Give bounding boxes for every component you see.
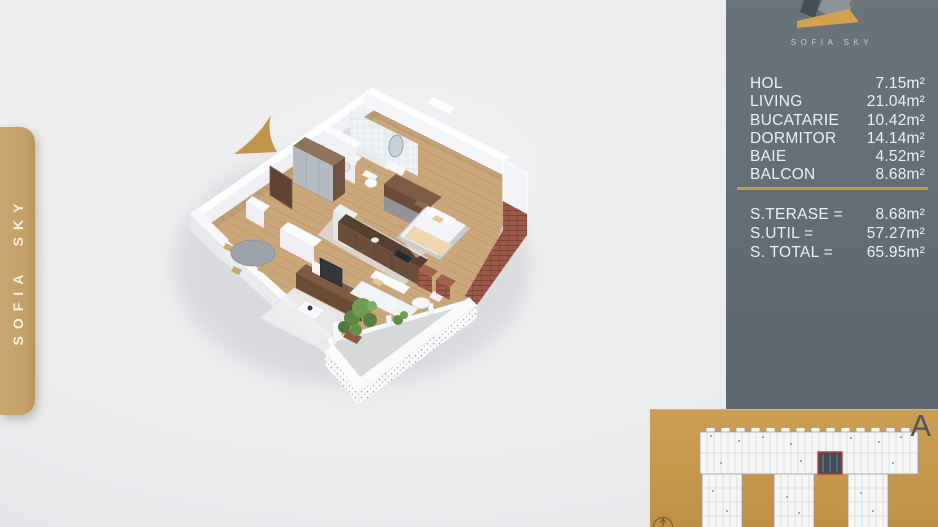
room-area: 4.52m²	[876, 148, 925, 166]
building-minimap-panel[interactable]: A	[650, 409, 938, 527]
window-mullion	[386, 315, 392, 327]
room-name: BALCON	[750, 166, 816, 184]
room-row: DORMITOR 14.14m²	[750, 130, 925, 148]
room-area-list: HOL 7.15m² LIVING 21.04m² BUCATARIE 10.4…	[750, 75, 925, 185]
building-footprint-map[interactable]	[650, 410, 938, 527]
apartment-viewer-screen: SOFIA SKY SOFIA SKY HOL 7.15m² LIVING 21…	[0, 0, 938, 527]
room-area: 8.68m²	[876, 166, 925, 184]
table-decor	[308, 306, 313, 311]
room-row: BUCATARIE 10.42m²	[750, 112, 925, 130]
totals-list: S.TERASE = 8.68m² S.UTIL = 57.27m² S. TO…	[750, 206, 925, 263]
total-row: S. TOTAL = 65.95m²	[750, 244, 925, 263]
logo-caption: SOFIA SKY	[726, 38, 938, 47]
total-row: S.TERASE = 8.68m²	[750, 206, 925, 225]
brand-side-tab-label: SOFIA SKY	[10, 197, 26, 346]
room-area: 7.15m²	[876, 75, 925, 93]
room-row: LIVING 21.04m²	[750, 93, 925, 111]
compass-icon	[654, 518, 673, 527]
total-name: S. TOTAL =	[750, 244, 833, 262]
north-arrow-icon	[234, 115, 277, 154]
room-name: HOL	[750, 75, 783, 93]
building-label[interactable]: A	[910, 409, 931, 444]
room-name: LIVING	[750, 93, 803, 111]
sofia-sky-logo	[787, 0, 877, 37]
room-area: 14.14m²	[867, 130, 925, 148]
room-row: BAIE 4.52m²	[750, 148, 925, 166]
total-name: S.TERASE =	[750, 206, 843, 224]
room-row: HOL 7.15m²	[750, 75, 925, 93]
total-row: S.UTIL = 57.27m²	[750, 225, 925, 244]
dining-table	[231, 240, 275, 266]
total-name: S.UTIL =	[750, 225, 813, 243]
gold-divider	[737, 187, 928, 190]
room-name: BUCATARIE	[750, 112, 839, 130]
logo-block: SOFIA SKY	[726, 0, 938, 47]
total-area: 57.27m²	[867, 225, 925, 243]
room-area: 10.42m²	[867, 112, 925, 130]
toilet	[365, 179, 377, 188]
total-area: 8.68m²	[876, 206, 925, 224]
balcony-table	[412, 298, 430, 309]
room-area: 21.04m²	[867, 93, 925, 111]
kitchen-sink	[371, 237, 379, 242]
total-area: 65.95m²	[867, 244, 925, 262]
room-name: DORMITOR	[750, 130, 837, 148]
room-name: BAIE	[750, 148, 787, 166]
brand-side-tab: SOFIA SKY	[0, 127, 35, 415]
room-row: BALCON 8.68m²	[750, 166, 925, 184]
